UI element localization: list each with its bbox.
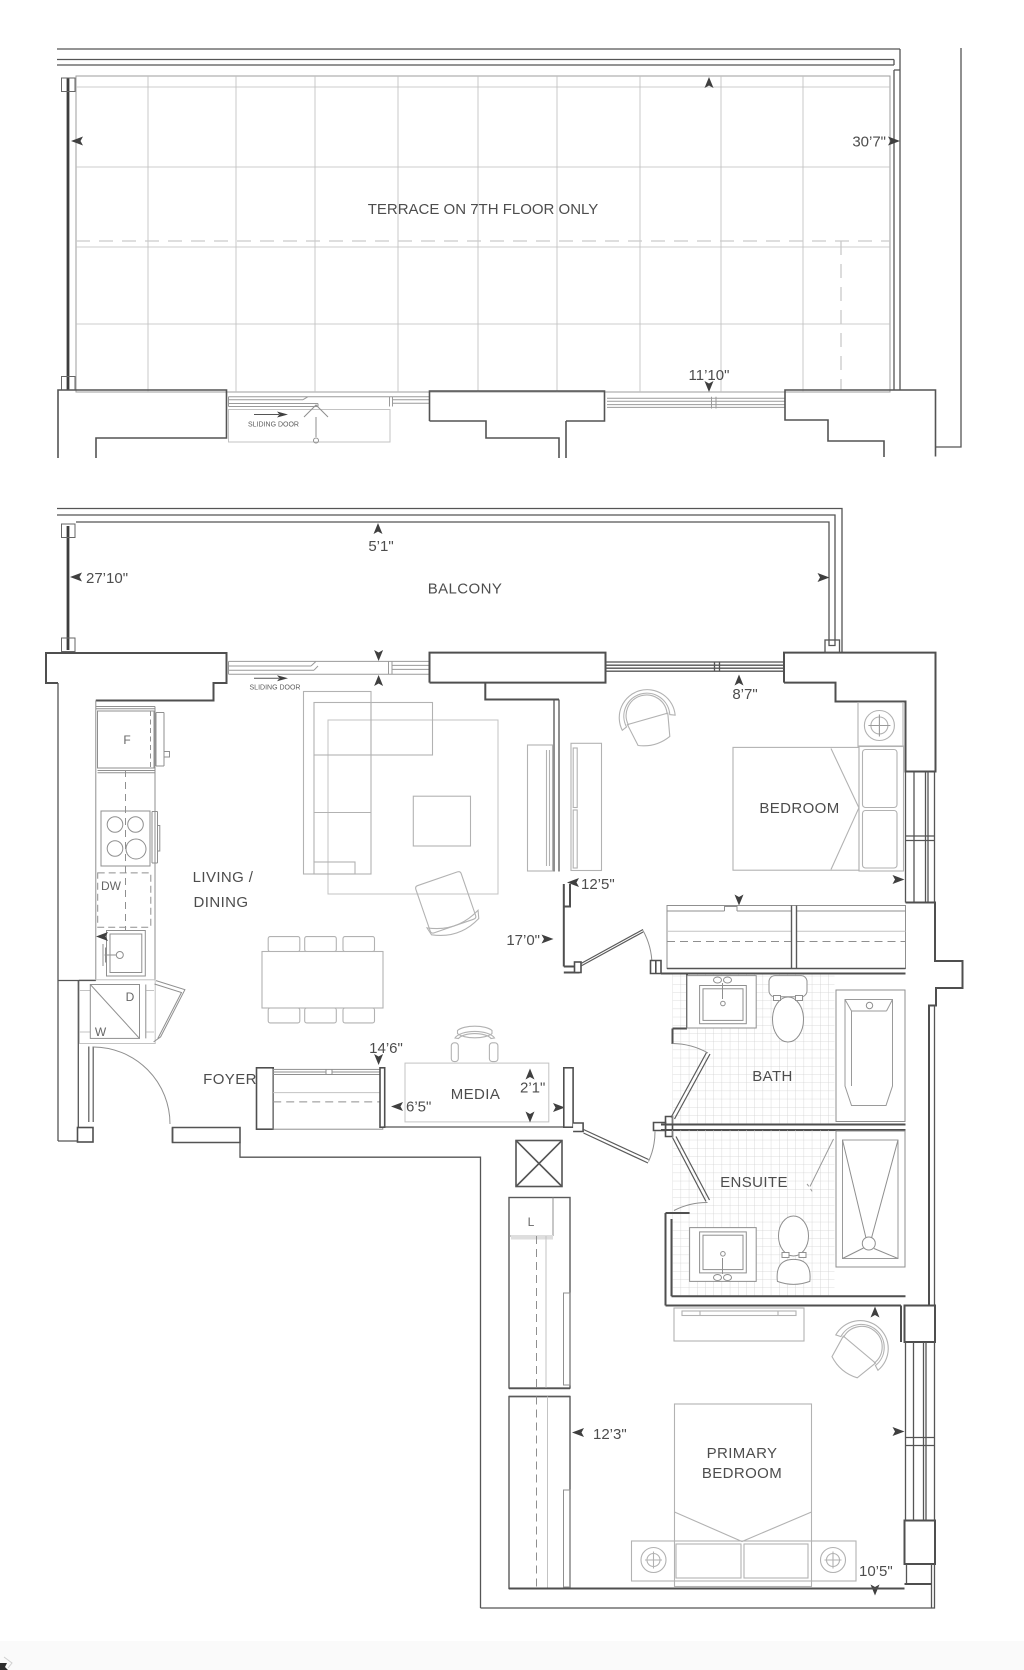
svg-text:14’6": 14’6" — [369, 1040, 403, 1057]
svg-text:DINING: DINING — [194, 894, 249, 911]
svg-text:6’5": 6’5" — [406, 1099, 431, 1116]
svg-text:17’0": 17’0" — [506, 932, 540, 949]
svg-text:BATH: BATH — [752, 1068, 793, 1085]
svg-text:11’10": 11’10" — [689, 367, 730, 384]
svg-text:TERRACE ON 7TH FLOOR ONLY: TERRACE ON 7TH FLOOR ONLY — [368, 201, 599, 218]
svg-text:BEDROOM: BEDROOM — [702, 1465, 782, 1482]
svg-text:SLIDING DOOR: SLIDING DOOR — [250, 685, 301, 692]
svg-text:LIVING /: LIVING / — [193, 869, 254, 886]
svg-text:12’3": 12’3" — [593, 1426, 627, 1443]
svg-text:BEDROOM: BEDROOM — [759, 800, 839, 817]
svg-text:5’1": 5’1" — [368, 538, 393, 555]
svg-text:DW: DW — [101, 879, 122, 893]
svg-text:ENSUITE: ENSUITE — [720, 1174, 788, 1191]
svg-text:L: L — [528, 1215, 535, 1229]
svg-text:27’10": 27’10" — [86, 570, 128, 587]
svg-text:10’5": 10’5" — [859, 1563, 893, 1580]
svg-text:BALCONY: BALCONY — [428, 581, 503, 598]
svg-text:F: F — [123, 733, 130, 747]
svg-text:FOYER: FOYER — [203, 1071, 257, 1088]
svg-text:D: D — [126, 990, 135, 1004]
svg-text:PRIMARY: PRIMARY — [707, 1445, 778, 1462]
svg-text:12’5": 12’5" — [581, 876, 615, 893]
svg-text:MEDIA: MEDIA — [451, 1086, 501, 1103]
svg-text:SLIDING DOOR: SLIDING DOOR — [248, 422, 299, 429]
svg-text:W: W — [95, 1025, 107, 1039]
svg-text:8’7": 8’7" — [732, 686, 757, 703]
svg-text:2’1": 2’1" — [520, 1080, 545, 1097]
svg-text:30’7": 30’7" — [852, 134, 886, 151]
